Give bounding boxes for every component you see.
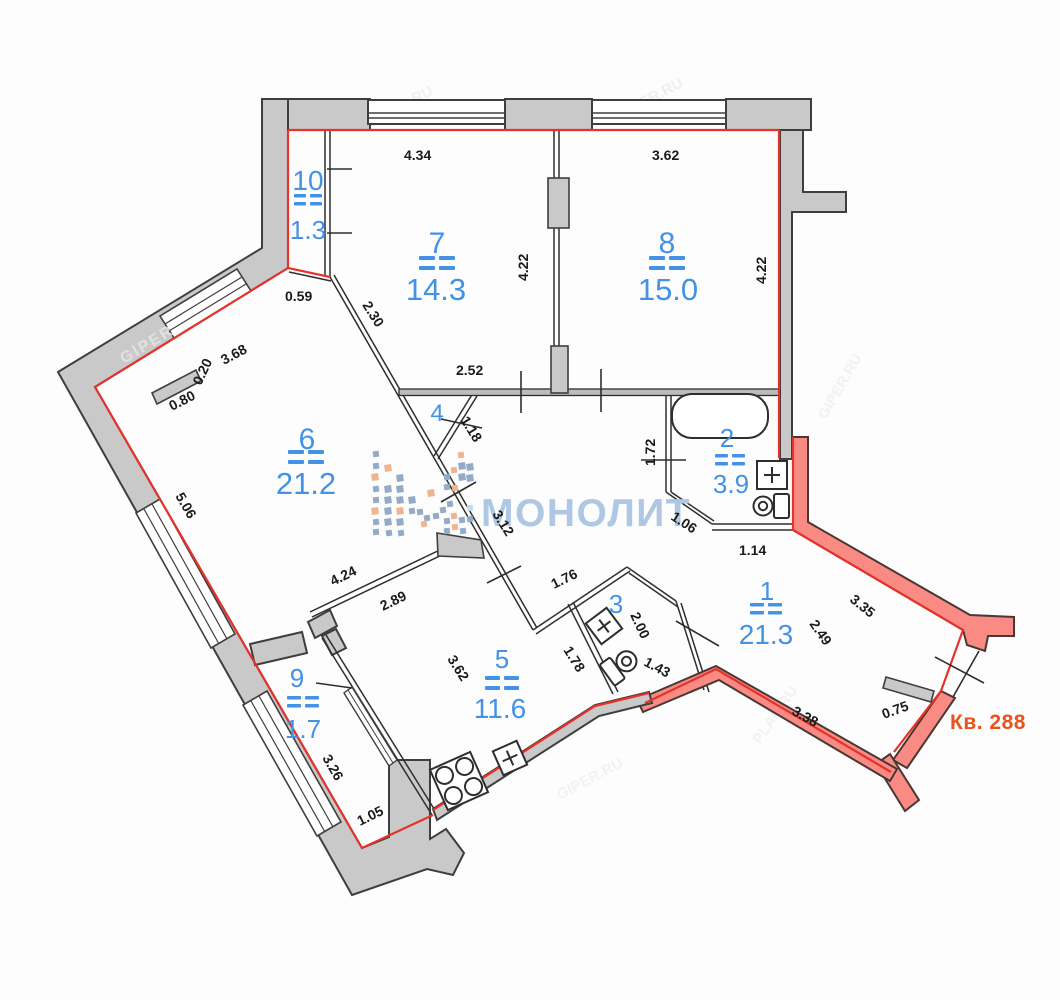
svg-text:21.3: 21.3 xyxy=(739,619,794,650)
svg-text:4.22: 4.22 xyxy=(753,257,769,284)
svg-text:3.62: 3.62 xyxy=(652,147,679,163)
svg-text:4.34: 4.34 xyxy=(404,147,431,163)
svg-text:10: 10 xyxy=(292,165,323,196)
svg-text:2.52: 2.52 xyxy=(456,362,483,378)
svg-text:3.9: 3.9 xyxy=(713,469,749,499)
svg-text:7: 7 xyxy=(429,227,446,260)
svg-text:1: 1 xyxy=(760,576,774,606)
svg-text:11.6: 11.6 xyxy=(474,693,526,724)
svg-text:4: 4 xyxy=(430,400,443,427)
svg-text:1.72: 1.72 xyxy=(642,439,658,466)
svg-text:21.2: 21.2 xyxy=(276,466,336,501)
svg-text:1.3: 1.3 xyxy=(290,215,326,245)
svg-text:9: 9 xyxy=(290,663,304,693)
svg-text:3: 3 xyxy=(609,589,623,619)
svg-text:1.7: 1.7 xyxy=(285,714,321,744)
svg-text:5: 5 xyxy=(495,644,509,674)
svg-text:2: 2 xyxy=(720,423,734,453)
svg-text:Кв. 288: Кв. 288 xyxy=(950,711,1026,734)
svg-text:0.59: 0.59 xyxy=(285,288,312,304)
svg-text:1.14: 1.14 xyxy=(739,542,766,558)
svg-text:15.0: 15.0 xyxy=(638,272,698,307)
svg-text:14.3: 14.3 xyxy=(406,272,466,307)
svg-text:8: 8 xyxy=(659,227,676,260)
svg-text:4.22: 4.22 xyxy=(515,254,531,281)
